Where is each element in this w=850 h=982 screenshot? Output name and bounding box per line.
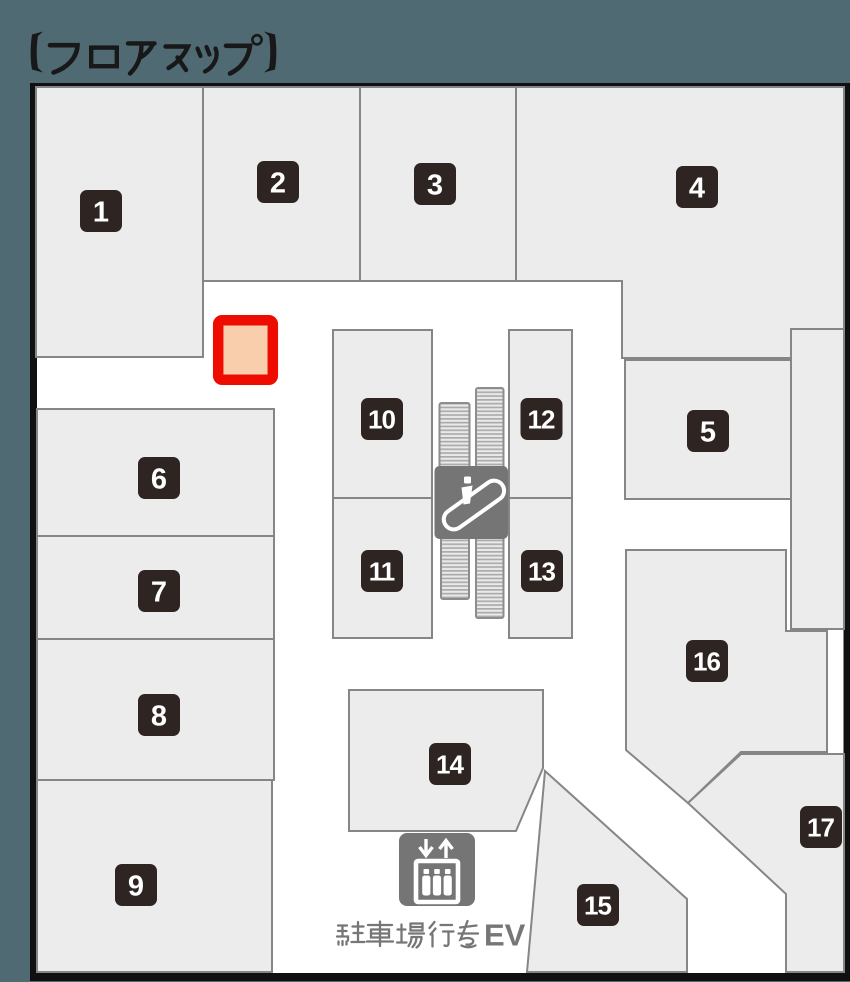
- svg-text:9: 9: [128, 871, 144, 903]
- svg-text:10: 10: [368, 405, 395, 435]
- svg-text:6: 6: [151, 464, 167, 496]
- svg-text:8: 8: [151, 701, 167, 733]
- svg-text:1: 1: [93, 197, 109, 229]
- svg-text:12: 12: [528, 405, 555, 435]
- svg-text:7: 7: [151, 577, 167, 609]
- svg-text:4: 4: [689, 173, 705, 205]
- svg-text:15: 15: [584, 891, 611, 921]
- svg-text:11: 11: [369, 557, 395, 587]
- svg-text:14: 14: [436, 750, 464, 780]
- svg-text:13: 13: [528, 557, 555, 587]
- svg-text:17: 17: [807, 813, 834, 843]
- svg-text:3: 3: [427, 170, 443, 202]
- svg-text:EV: EV: [484, 918, 526, 953]
- svg-text:16: 16: [693, 647, 720, 677]
- svg-text:2: 2: [270, 168, 286, 200]
- svg-text:5: 5: [700, 417, 716, 449]
